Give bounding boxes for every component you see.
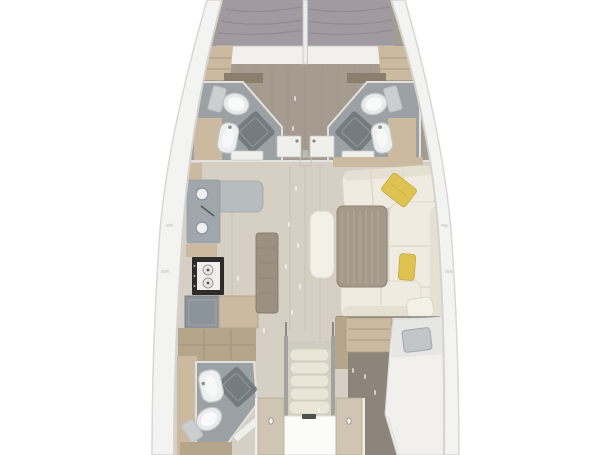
aft-berth <box>385 317 444 455</box>
cabin-door-port <box>277 136 301 157</box>
door-handle <box>269 418 273 424</box>
galley-worktop <box>219 296 258 328</box>
sofa-cushion <box>406 296 435 319</box>
berth-divider-wall <box>303 0 308 64</box>
door-panel <box>258 398 284 455</box>
door-panel <box>336 398 362 455</box>
engine-hatch-platform <box>280 416 338 455</box>
mattress <box>215 0 303 46</box>
galley-shelf <box>186 244 217 257</box>
aft-cabin-door-starboard <box>336 398 365 455</box>
saloon-island-cabinet <box>256 233 278 313</box>
hatch-latch <box>302 414 316 419</box>
galley-locker <box>185 296 220 329</box>
cabinet <box>180 442 232 455</box>
stair-rail-port <box>284 336 288 420</box>
mattress-foot <box>231 46 303 64</box>
door-handle <box>312 139 315 142</box>
stove <box>192 257 224 295</box>
floor-plan-svg <box>0 0 607 455</box>
mattress-foot <box>307 46 380 64</box>
stair-rail-starboard <box>331 336 335 420</box>
cabin-door-starboard <box>310 136 334 157</box>
aft-desk <box>346 318 392 352</box>
mast-post <box>303 150 309 157</box>
saloon-bench <box>310 211 334 278</box>
yellow-pillow <box>398 253 416 280</box>
berth-pillow <box>402 327 432 352</box>
companionway-steps <box>289 349 330 414</box>
dining-table <box>337 206 387 287</box>
head-door <box>231 151 263 160</box>
sideboard <box>333 157 423 167</box>
floor-plan-image <box>0 0 607 455</box>
aft-cabin-door-port <box>255 398 284 455</box>
door-handle <box>295 139 298 142</box>
door-handle <box>347 418 351 424</box>
